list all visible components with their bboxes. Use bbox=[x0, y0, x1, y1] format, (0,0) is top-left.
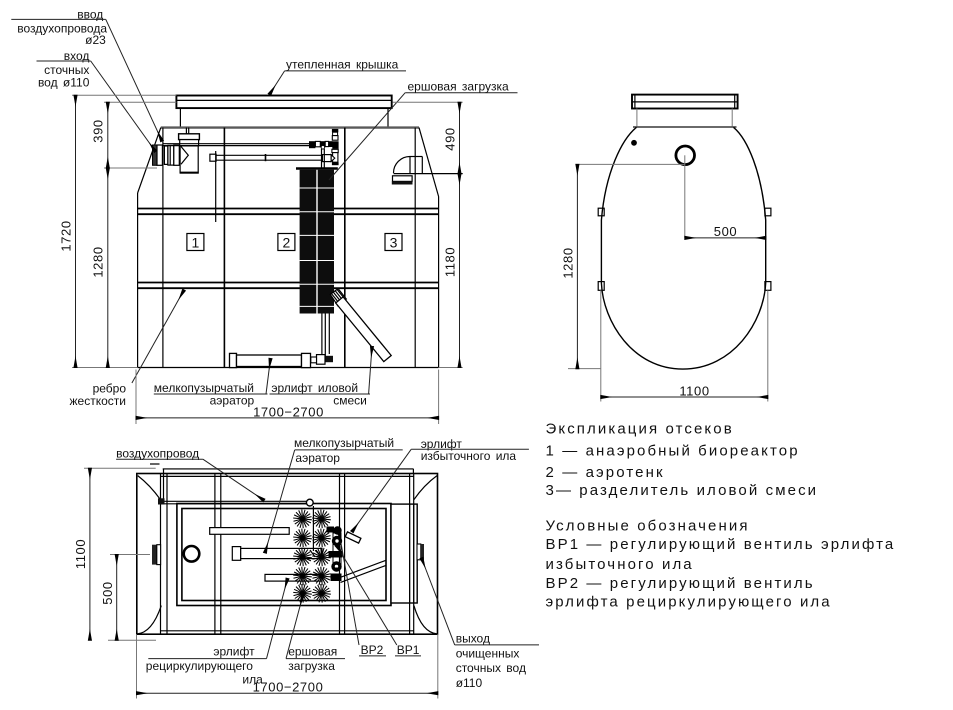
svg-text:утепленная крышка: утепленная крышка bbox=[286, 58, 399, 72]
svg-text:загрузка: загрузка bbox=[288, 659, 335, 673]
svg-text:500: 500 bbox=[714, 224, 738, 239]
svg-text:ВР2: ВР2 bbox=[361, 643, 384, 657]
svg-text:ершовая загрузка: ершовая загрузка bbox=[408, 79, 510, 93]
svg-text:выход: выход bbox=[456, 631, 490, 645]
svg-text:ВР1: ВР1 bbox=[397, 643, 420, 657]
svg-text:избыточного ила: избыточного ила bbox=[421, 449, 517, 463]
svg-text:ершовая: ершовая bbox=[288, 644, 337, 658]
svg-text:2: 2 bbox=[283, 235, 291, 251]
svg-text:3: 3 bbox=[390, 235, 398, 251]
svg-text:1100: 1100 bbox=[73, 539, 88, 569]
svg-text:490: 490 bbox=[443, 127, 458, 151]
svg-text:1700−2700: 1700−2700 bbox=[253, 680, 324, 695]
svg-text:1180: 1180 bbox=[443, 247, 458, 277]
svg-text:ВР2 — регулирующий вентиль: ВР2 — регулирующий вентиль bbox=[546, 575, 815, 592]
svg-text:2 — аэротенк: 2 — аэротенк bbox=[546, 464, 665, 481]
svg-text:Условные обозначения: Условные обозначения bbox=[546, 517, 750, 534]
svg-text:1100: 1100 bbox=[679, 384, 709, 399]
svg-text:ø110: ø110 bbox=[456, 676, 483, 690]
svg-text:смеси: смеси bbox=[333, 393, 367, 407]
svg-text:аэратор: аэратор bbox=[295, 451, 340, 465]
svg-text:3— разделитель иловой смеси: 3— разделитель иловой смеси bbox=[546, 482, 819, 499]
svg-text:1: 1 bbox=[192, 235, 200, 251]
svg-text:вод ø110: вод ø110 bbox=[38, 76, 90, 90]
svg-text:ВР1 — регулирующий вентиль: ВР1 — регулирующий вентиль эрлифта bbox=[546, 536, 896, 553]
svg-text:эрлифта рециркулирующего ила: эрлифта рециркулирующего ила bbox=[546, 594, 832, 611]
svg-text:очищенных: очищенных bbox=[456, 646, 520, 660]
svg-text:390: 390 bbox=[91, 119, 106, 143]
svg-text:аэратор: аэратор bbox=[210, 393, 255, 407]
svg-text:1280: 1280 bbox=[91, 246, 106, 277]
svg-text:500: 500 bbox=[100, 581, 115, 605]
svg-text:рециркулирующего: рециркулирующего bbox=[146, 659, 253, 673]
svg-text:жесткости: жесткости bbox=[70, 394, 126, 408]
svg-text:Экспликация отсеков: Экспликация отсеков bbox=[546, 421, 734, 438]
svg-text:мелкопузырчатый: мелкопузырчатый bbox=[294, 436, 394, 450]
svg-text:ø23: ø23 bbox=[85, 33, 106, 47]
svg-text:1280: 1280 bbox=[560, 247, 575, 278]
svg-text:1720: 1720 bbox=[59, 220, 74, 251]
svg-text:1 — анаэробный биореактор: 1 — анаэробный биореактор bbox=[546, 443, 800, 460]
svg-text:избыточного ила: избыточного ила bbox=[546, 556, 694, 573]
svg-text:эрлифт: эрлифт bbox=[213, 644, 255, 658]
svg-text:1700−2700: 1700−2700 bbox=[253, 404, 324, 419]
svg-text:воздухопровод: воздухопровод bbox=[116, 447, 199, 461]
svg-text:сточных вод: сточных вод bbox=[456, 661, 526, 675]
